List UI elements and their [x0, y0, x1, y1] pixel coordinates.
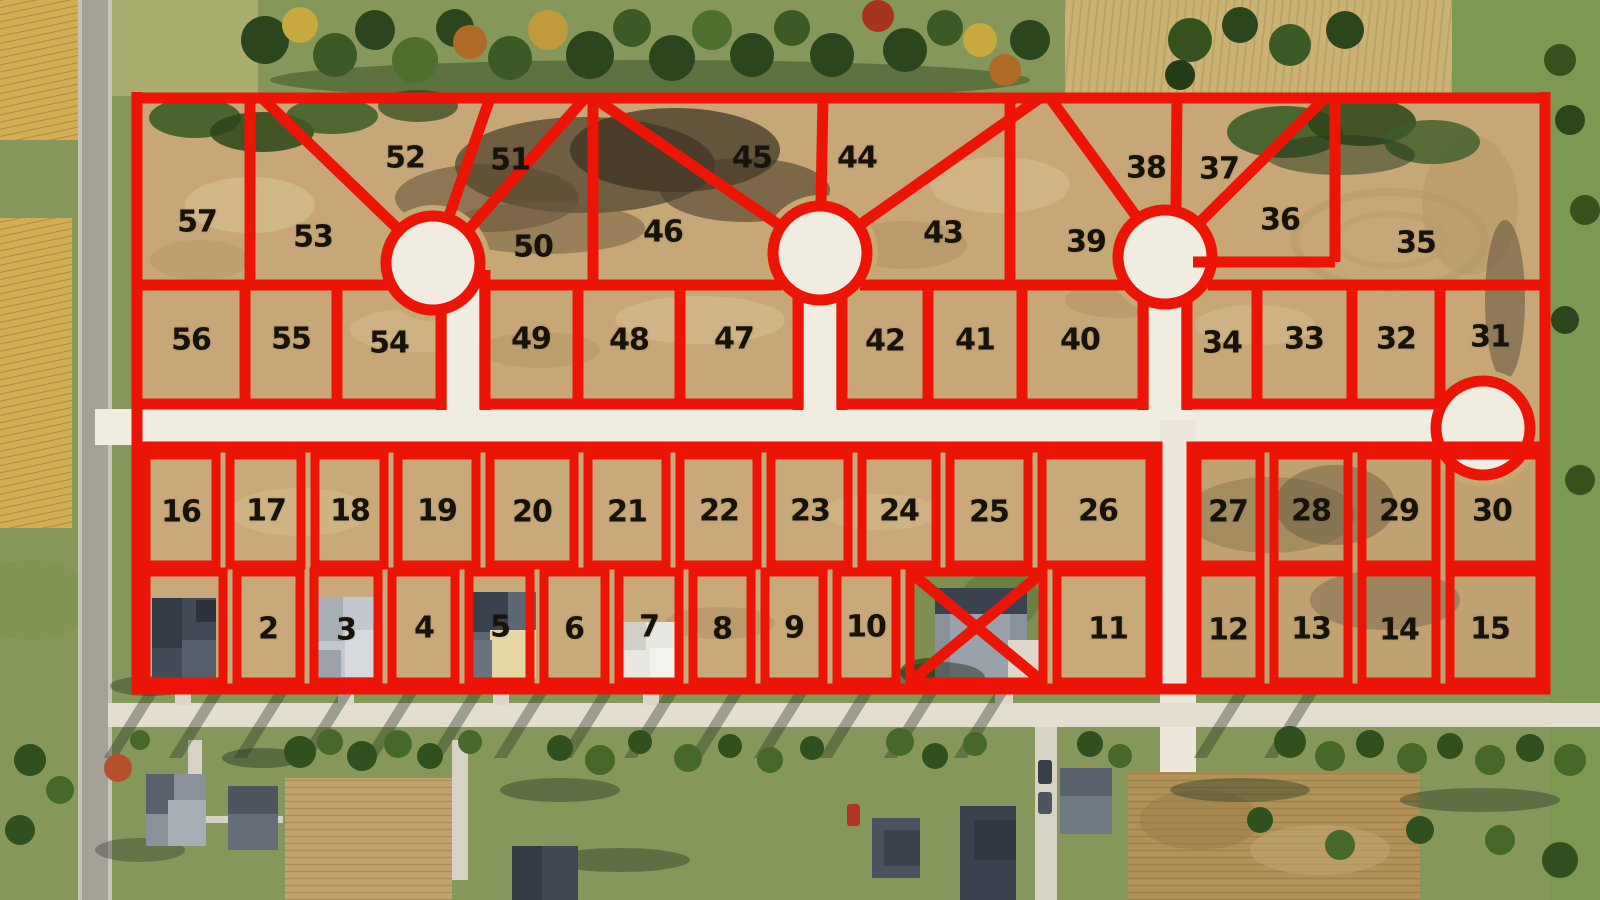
red-autumn-tree	[862, 0, 894, 32]
dry-grass-strip	[108, 0, 258, 96]
county-road-left	[82, 0, 108, 900]
driveway-south-1	[452, 740, 468, 880]
corn-field-top-left	[0, 0, 80, 140]
car	[1038, 792, 1052, 814]
corn-field-left	[0, 218, 72, 528]
car	[1038, 760, 1052, 784]
house-lot-1	[152, 598, 216, 682]
orange-tree	[104, 754, 132, 782]
house-lot-3	[313, 597, 379, 677]
main-street	[95, 409, 1445, 445]
red-car	[847, 804, 860, 826]
house-lot-7	[622, 622, 680, 678]
aerial-plat-map: 5753525150464544433938373635565554494847…	[0, 0, 1600, 900]
map-graphic	[0, 0, 1600, 900]
